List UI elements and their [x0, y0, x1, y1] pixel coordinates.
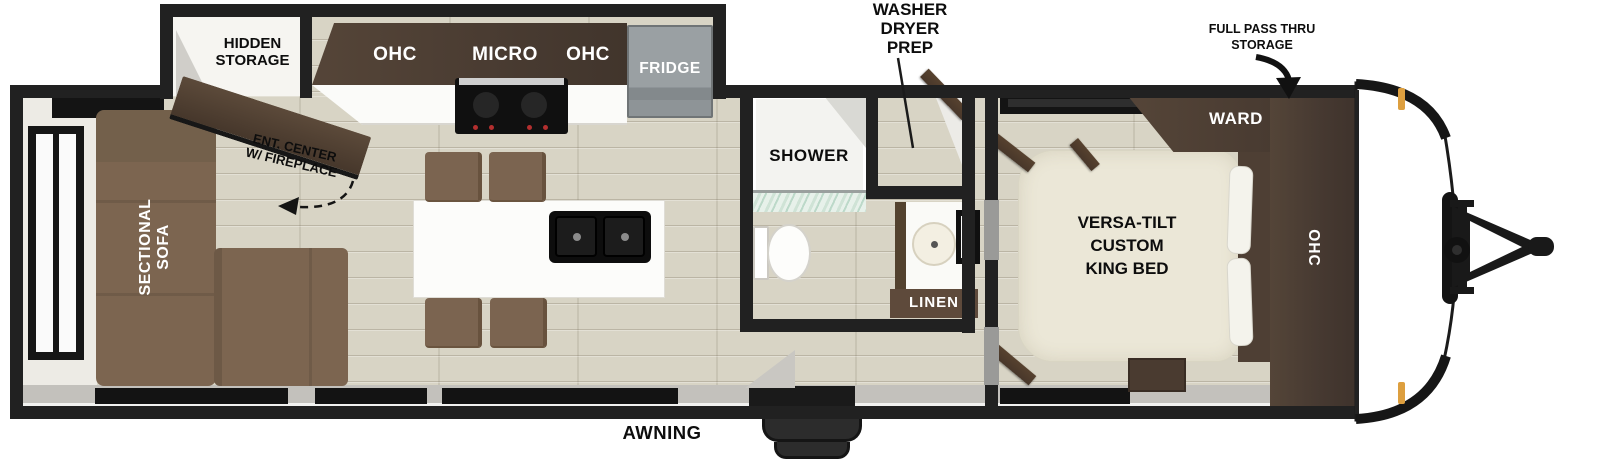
overlay-graphics [0, 0, 1600, 471]
fpt-line1: FULL PASS THRU [1194, 22, 1330, 38]
wd-line3: PREP [845, 38, 975, 57]
washer-dryer-prep-label: WASHER DRYER PREP [845, 0, 975, 57]
hitch-icon [1442, 192, 1554, 304]
full-pass-thru-arrow-icon [1256, 57, 1301, 99]
wd-line2: DRYER [845, 19, 975, 38]
front-cap [1355, 83, 1456, 420]
floorplan-canvas: SECTIONAL SOFA ENT. CENTER W/ FIREPLACE … [0, 0, 1600, 471]
wd-line1: WASHER [845, 0, 975, 19]
clearance-light [1398, 88, 1405, 110]
ent-center-arrow-icon [278, 181, 353, 215]
full-pass-thru-label: FULL PASS THRU STORAGE [1194, 22, 1330, 53]
fpt-line2: STORAGE [1194, 38, 1330, 54]
awning-label: AWNING [599, 423, 725, 444]
washer-dryer-leader-line [898, 58, 913, 148]
clearance-light [1398, 382, 1405, 404]
